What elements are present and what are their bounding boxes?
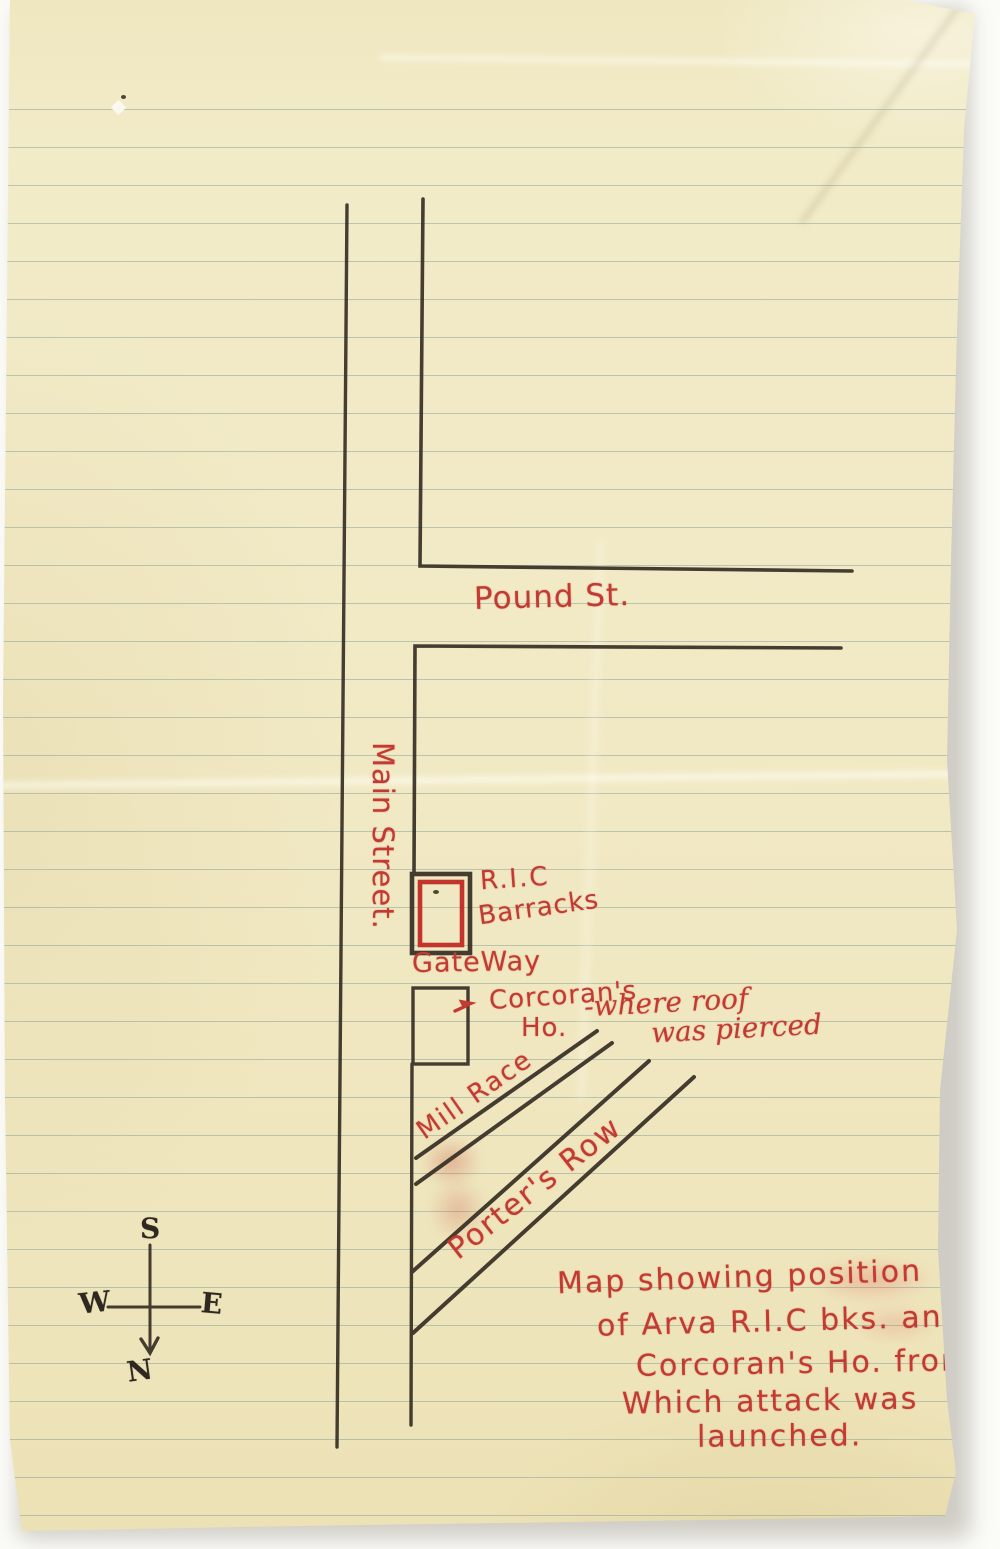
main-street-west-line [337, 205, 347, 1447]
pound-street-south-line [414, 646, 841, 874]
corcorans-house-label: Ho. [521, 1015, 567, 1042]
scanned-paper-sheet: Pound St. Main Street. R.I.C Barracks Ga… [0, 0, 1000, 1549]
compass-west-letter: W [78, 1286, 112, 1319]
corcorans-house-outline [413, 988, 468, 1064]
map-caption-line: Which attack was [622, 1383, 919, 1420]
map-caption-line: Corcoran's Ho. from [636, 1345, 973, 1382]
gateway-label: GateWay [412, 948, 542, 979]
ric-barracks-label: R.I.C [479, 864, 550, 896]
pound-street-label: Pound St. [474, 579, 631, 616]
main-street-east-line-upper [420, 199, 852, 571]
compass-north-letter: N [125, 1354, 154, 1387]
main-street-east-line-lower [411, 1064, 412, 1425]
map-caption-line: launched. [697, 1420, 863, 1453]
compass-east-letter: E [200, 1288, 224, 1319]
compass-south-letter: S [140, 1214, 160, 1243]
main-street-label: Main Street. [368, 742, 398, 930]
ric-barracks-red-outline [420, 882, 462, 945]
